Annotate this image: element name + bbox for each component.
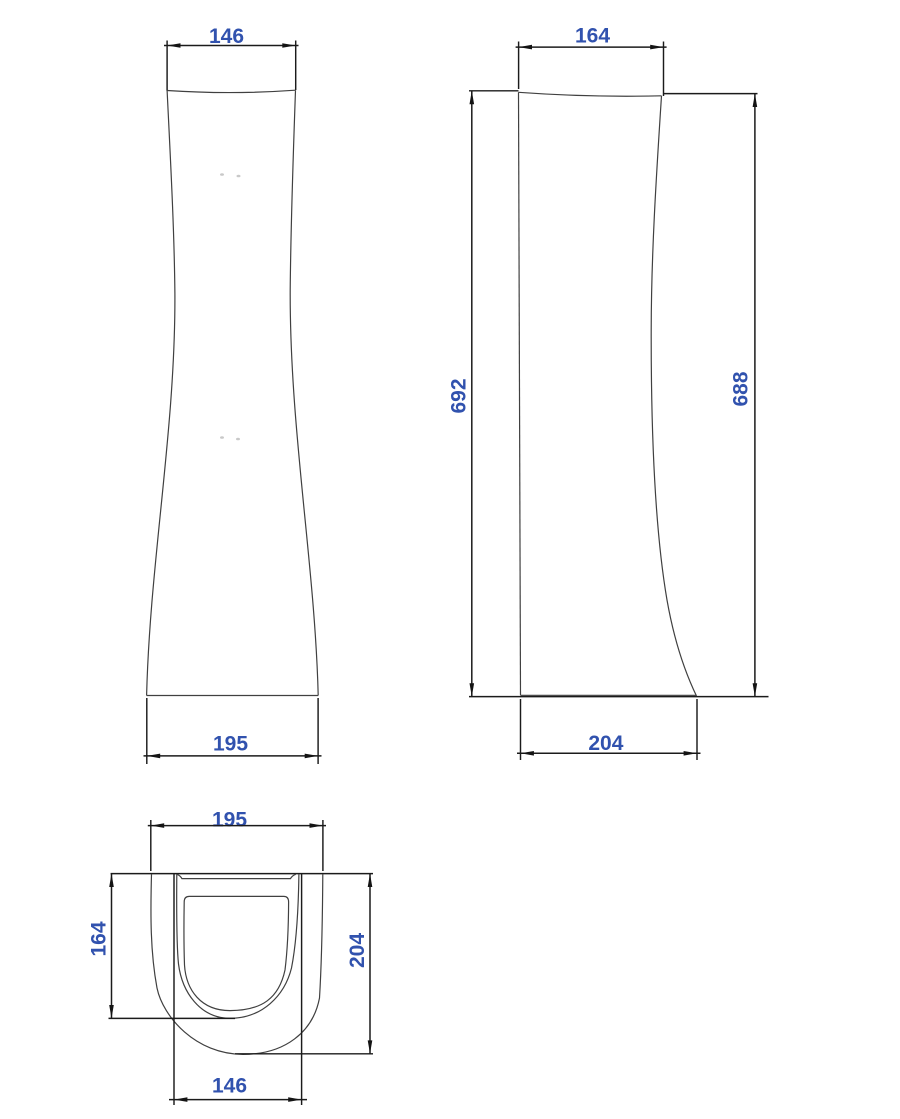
svg-text:195: 195 xyxy=(212,809,247,832)
svg-text:204: 204 xyxy=(588,732,623,755)
svg-text:164: 164 xyxy=(87,921,110,956)
svg-text:146: 146 xyxy=(212,1075,247,1098)
svg-text:204: 204 xyxy=(346,933,369,968)
svg-text:195: 195 xyxy=(213,733,248,756)
svg-text:164: 164 xyxy=(575,25,610,48)
svg-text:146: 146 xyxy=(209,25,244,48)
svg-text:692: 692 xyxy=(448,378,471,413)
svg-text:688: 688 xyxy=(730,371,753,406)
